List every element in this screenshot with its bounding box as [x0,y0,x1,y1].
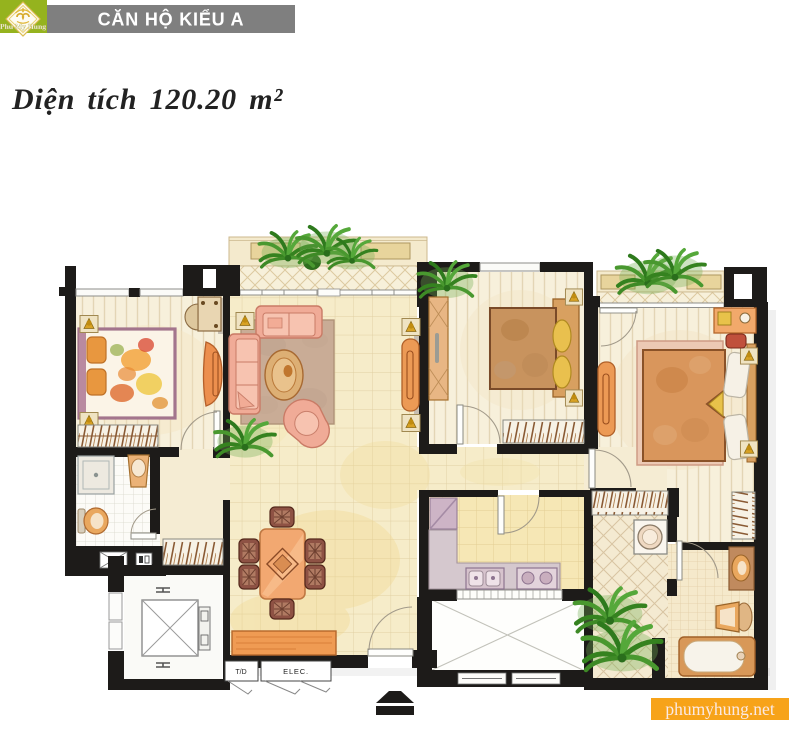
svg-text:T/D: T/D [235,669,246,676]
svg-text:CĂN HỘ KIỂU A: CĂN HỘ KIỂU A [98,9,245,30]
svg-text:Diện tích 120.20 m²: Diện tích 120.20 m² [11,83,283,116]
svg-text:phumyhung.net: phumyhung.net [665,699,775,719]
svg-text:Phu My Hung: Phu My Hung [0,22,46,31]
svg-text:ELEC.: ELEC. [283,667,309,676]
